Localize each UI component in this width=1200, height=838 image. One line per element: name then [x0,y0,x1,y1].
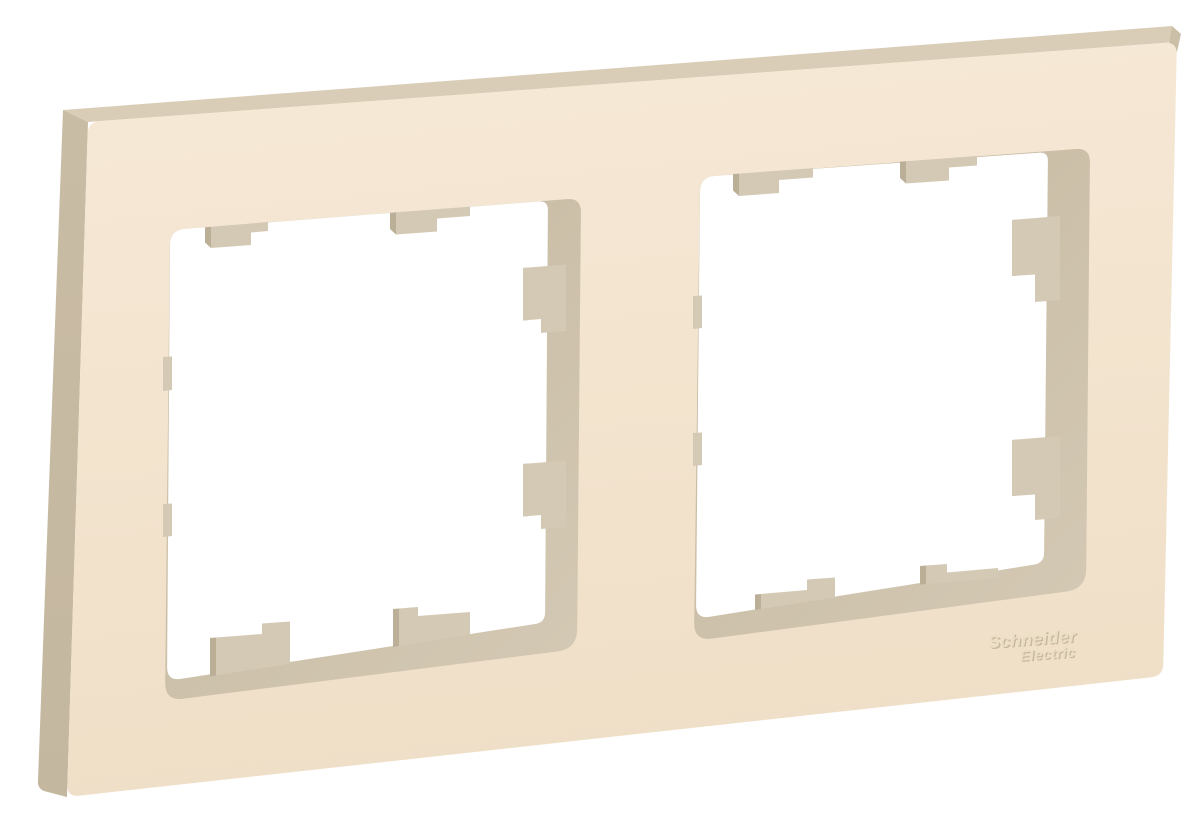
right-opening-cutout [696,153,1048,617]
mounting-tab-side-small [693,296,702,330]
mounting-tab-side-small [163,357,172,392]
mounting-tab-side-small [693,433,702,467]
wall-frame-product-image: Schneider Schneider Electric Electric [0,0,1200,838]
tab-edge [393,609,399,648]
tab-edge [210,638,216,677]
mounting-tab-side-small [163,504,172,538]
tab-edge [920,566,926,585]
product-photo-canvas: Schneider Schneider Electric Electric [0,0,1200,838]
tab-edge [755,594,761,610]
left-opening-cutout [167,201,548,679]
left-opening [165,199,581,699]
